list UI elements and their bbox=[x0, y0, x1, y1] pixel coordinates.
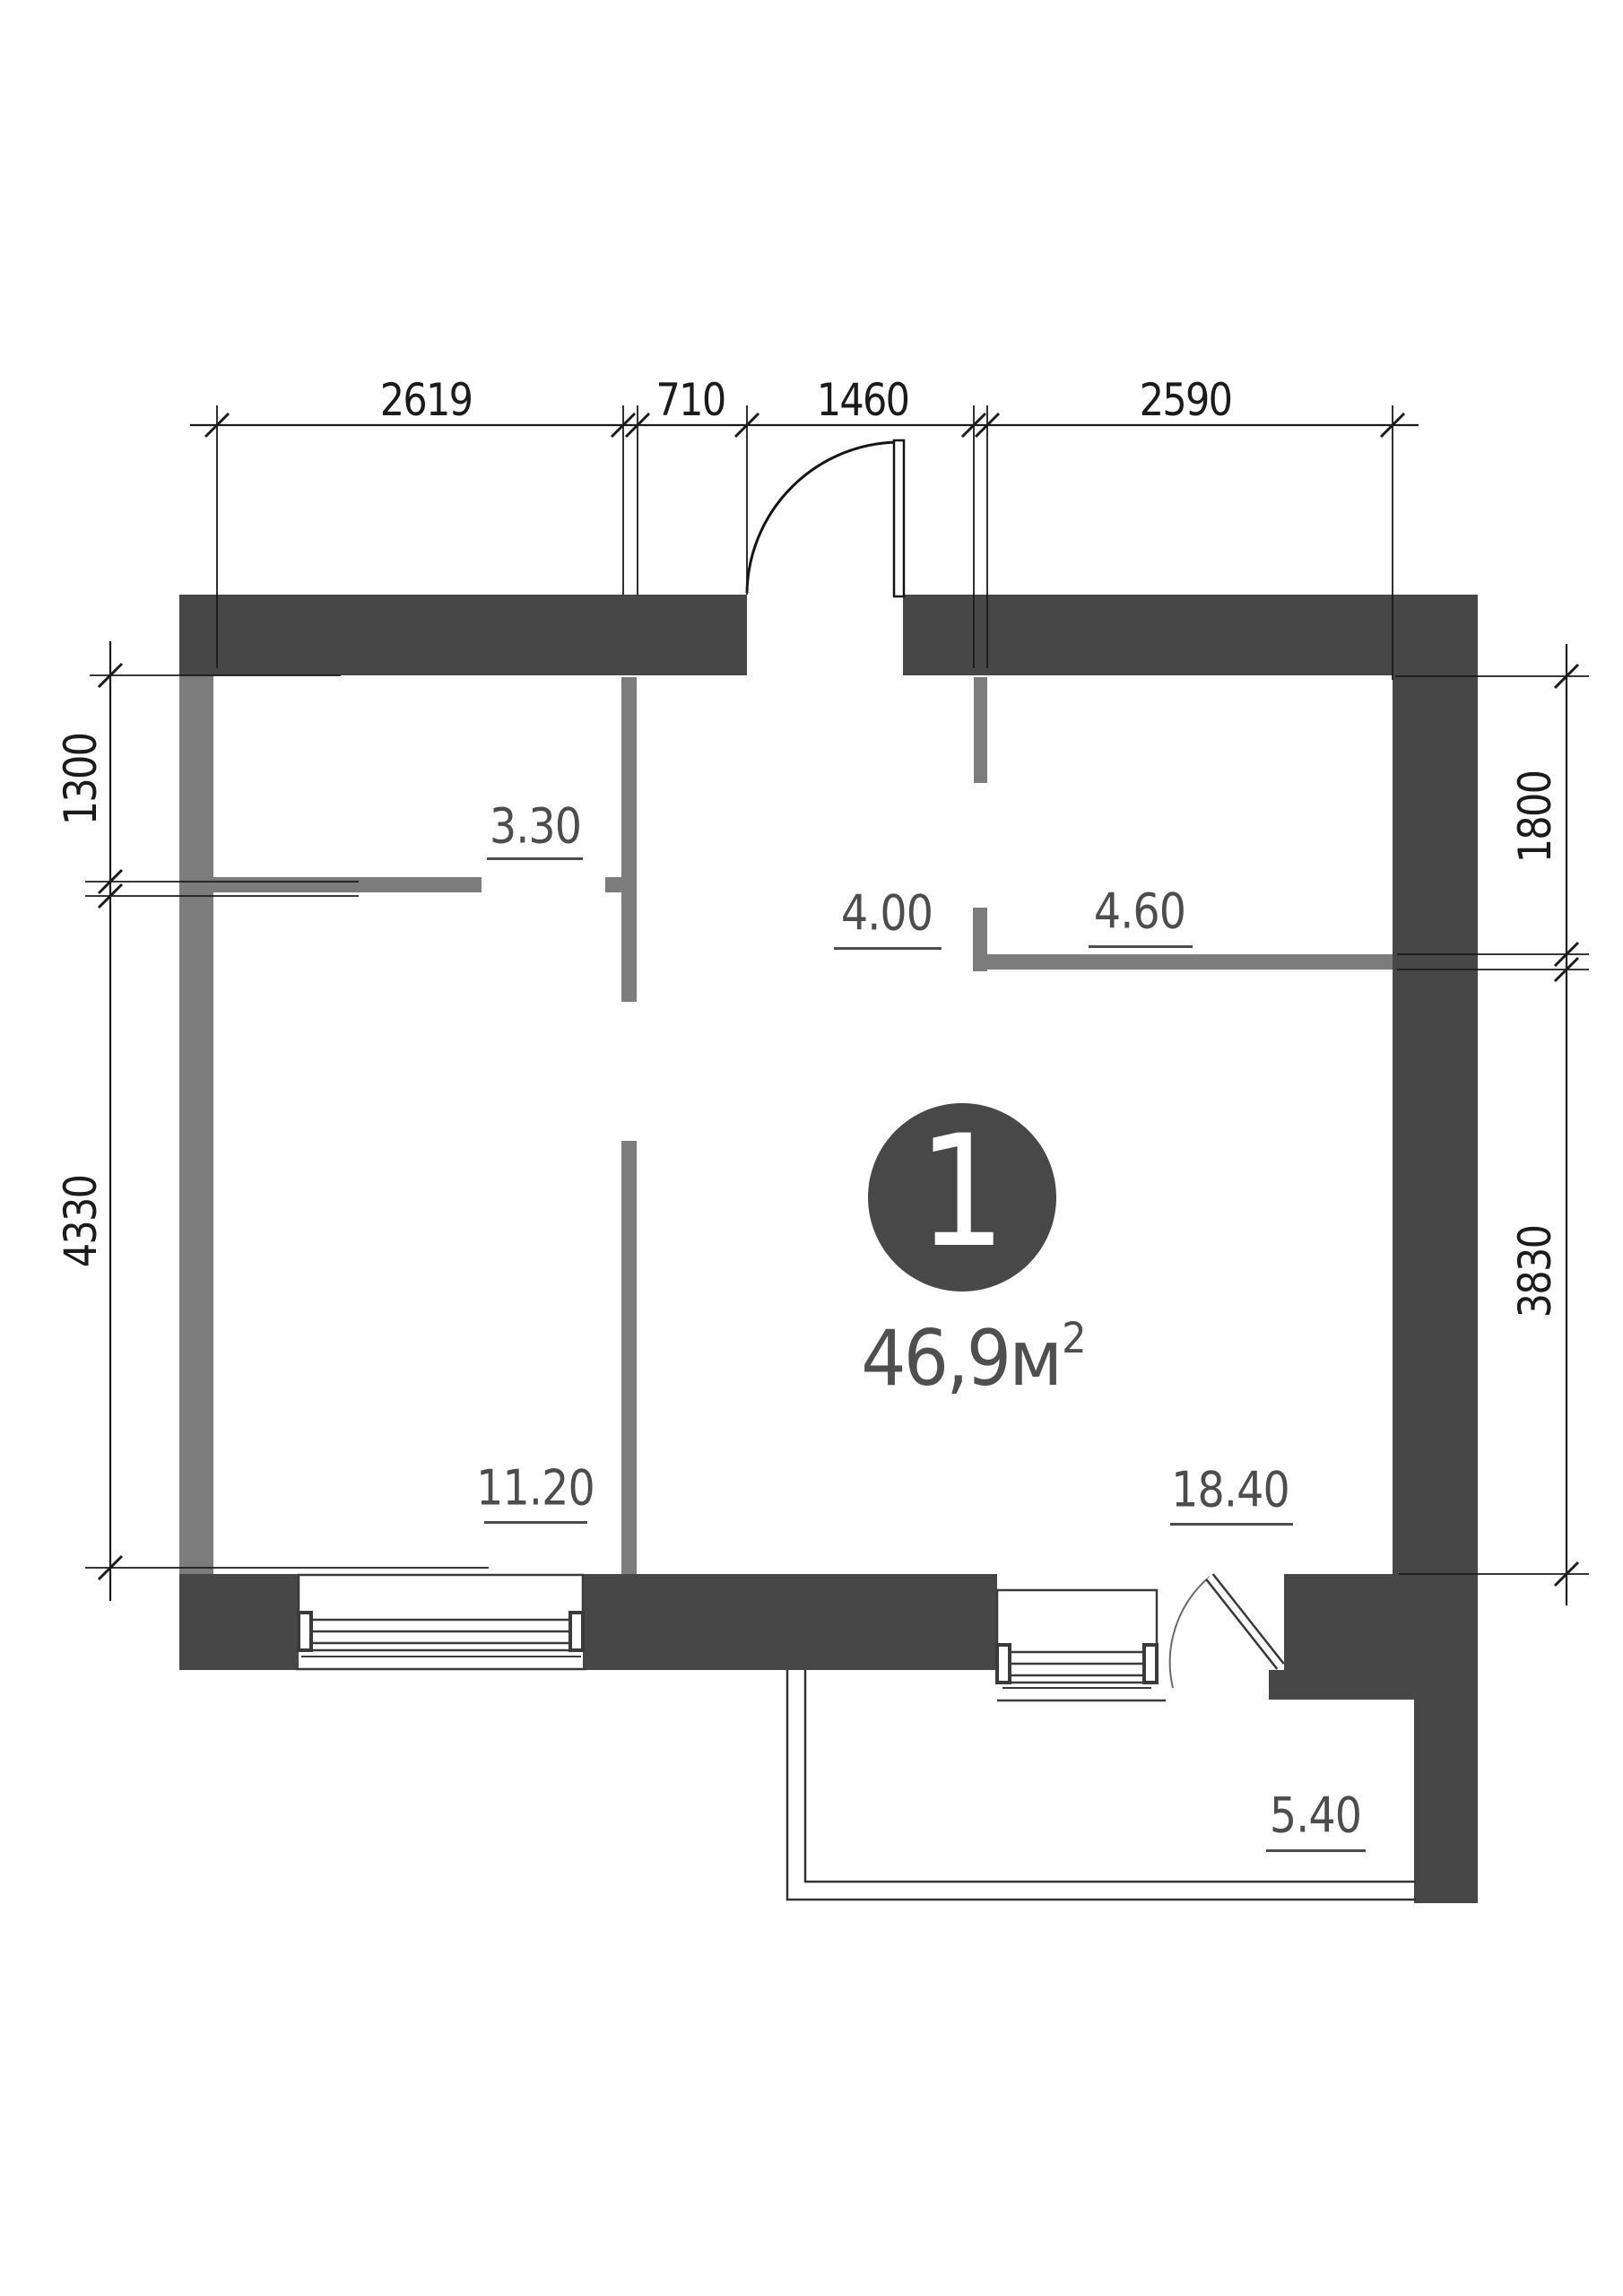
dim-label-top-2619: 2619 bbox=[380, 374, 473, 426]
entrance-door-leaf bbox=[894, 440, 904, 596]
wall-bottom-middle bbox=[583, 1574, 997, 1670]
partition-vertical-lower bbox=[621, 1141, 637, 1574]
dim-label-right-1800: 1800 bbox=[1509, 771, 1561, 864]
partition-bedroom-wall bbox=[213, 877, 482, 892]
wall-door-pier-notch bbox=[1269, 1670, 1284, 1700]
dim-label-top-2590: 2590 bbox=[1140, 374, 1232, 426]
dim-label-left-1300: 1300 bbox=[55, 734, 107, 826]
dim-label-top-1460: 1460 bbox=[817, 374, 909, 426]
partition-kitchen-stub bbox=[974, 677, 987, 783]
partition-kitchen-wall bbox=[973, 954, 1393, 970]
walls-load-bearing bbox=[179, 595, 1478, 1903]
room-label-bedroom: 11.20 bbox=[476, 1460, 595, 1517]
partition-bedroom-stub bbox=[605, 877, 621, 892]
balcony-railing-outer bbox=[787, 1670, 1416, 1900]
unit-number: 1 bbox=[918, 1115, 1006, 1269]
window-jamb bbox=[299, 1613, 311, 1650]
room-label-kitchen: 4.60 bbox=[1094, 883, 1185, 940]
wall-top-right bbox=[903, 595, 1478, 675]
extension-lines-left bbox=[85, 675, 489, 1568]
dim-label-left-4330: 4330 bbox=[55, 1176, 107, 1268]
dim-label-right-3830: 3830 bbox=[1509, 1226, 1561, 1318]
room-underline-kitchen bbox=[1089, 945, 1193, 948]
room-label-living: 18.40 bbox=[1171, 1462, 1289, 1518]
wall-bottom-left-pier bbox=[179, 1574, 299, 1670]
wall-top-left bbox=[179, 595, 747, 675]
entrance-door bbox=[747, 440, 904, 596]
room-underline-hallway bbox=[487, 857, 583, 860]
wall-right bbox=[1393, 595, 1478, 1700]
room-underline-balcony bbox=[1266, 1849, 1366, 1852]
window-jamb bbox=[997, 1645, 1010, 1683]
area-unit: м bbox=[1009, 1314, 1060, 1404]
room-label-hallway: 3.30 bbox=[490, 798, 581, 855]
window-jamb bbox=[570, 1613, 583, 1650]
window-recess bbox=[997, 1590, 1157, 1683]
wall-left-partition bbox=[179, 675, 213, 1574]
balcony-railing bbox=[787, 1670, 1416, 1900]
bedroom-window bbox=[296, 1575, 586, 1669]
room-underline-entry bbox=[834, 947, 942, 950]
unit-number-badge: 1 bbox=[868, 1103, 1056, 1291]
balcony-door-swing-arc bbox=[1170, 1577, 1210, 1688]
window-jamb bbox=[1144, 1645, 1157, 1683]
walls-partition bbox=[179, 675, 1393, 1574]
dim-label-top-710: 710 bbox=[656, 374, 725, 426]
total-area-label: 46,9м2 bbox=[861, 1314, 1085, 1404]
wall-balcony-door-pier bbox=[1284, 1574, 1397, 1700]
balcony-door-leaf bbox=[1210, 1577, 1280, 1666]
entrance-door-swing-arc bbox=[747, 442, 897, 593]
room-underline-living bbox=[1170, 1523, 1293, 1526]
dimension-lines bbox=[85, 405, 1589, 1605]
room-label-entry: 4.00 bbox=[841, 885, 933, 942]
window-recess bbox=[299, 1575, 583, 1650]
room-label-balcony: 5.40 bbox=[1270, 1787, 1361, 1844]
room-underline-bedroom bbox=[484, 1521, 587, 1524]
area-value: 46,9 bbox=[861, 1314, 1009, 1404]
living-room-window bbox=[997, 1590, 1166, 1700]
floor-plan-canvas: 2619 710 1460 2590 1300 4330 1800 3830 3… bbox=[0, 0, 1623, 2296]
area-superscript: 2 bbox=[1062, 1314, 1087, 1363]
balcony-door bbox=[1170, 1577, 1280, 1688]
wall-balcony-right bbox=[1414, 1700, 1478, 1903]
floor-plan-drawing bbox=[0, 0, 1623, 2296]
partition-vertical-upper bbox=[621, 677, 637, 1002]
